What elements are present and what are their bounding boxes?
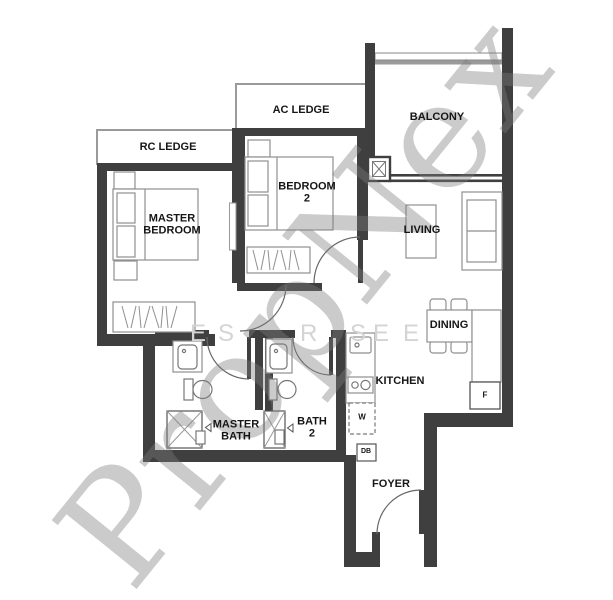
ledges: [97, 84, 366, 164]
ac-ledge-box: [236, 84, 366, 129]
mirror-panel: [230, 203, 237, 250]
floor-plan-drawing: [0, 0, 613, 600]
pillow-icon: [117, 226, 135, 257]
chair-icon: [451, 299, 467, 311]
bath2-fixtures: [264, 339, 296, 448]
floor-plan: PropNex E S R S E E RC LEDGE AC LEDGE BA…: [0, 0, 613, 600]
fridge-box: [470, 382, 500, 409]
washer-box: [349, 403, 375, 434]
counter-icon: [472, 310, 501, 382]
balcony-railing: [375, 53, 502, 65]
chair-icon: [430, 341, 446, 353]
entrance-door-arc: [377, 490, 421, 534]
nightstand-icon: [114, 172, 135, 189]
chair-icon: [451, 341, 467, 353]
toilet-icon: [269, 379, 277, 400]
bath2-door-arc: [293, 337, 331, 375]
wardrobe-icon: [247, 247, 310, 273]
coffee-table-icon: [406, 205, 436, 258]
bedroom2-furniture: [245, 140, 333, 273]
balcony-sliding-door: [388, 174, 502, 182]
pillow-icon: [248, 161, 268, 192]
master-bedroom-furniture: [113, 172, 198, 332]
master-bath-door-leaf: [247, 337, 251, 379]
bedroom2-door-arc: [314, 237, 360, 283]
living-furniture: [406, 192, 502, 270]
sink-icon: [350, 337, 371, 353]
kitchen-fittings: [346, 333, 376, 461]
rc-ledge-box: [97, 130, 240, 164]
chair-icon: [430, 299, 446, 311]
nightstand-icon: [248, 140, 270, 157]
dining-furniture: [427, 299, 501, 409]
nightstand-icon: [114, 261, 137, 280]
db-box: [357, 444, 376, 461]
toilet-icon: [184, 379, 193, 400]
master-bedroom-door-arc: [240, 285, 286, 331]
bedroom2-door-leaf: [358, 235, 363, 283]
master-bath-fixtures: [167, 341, 212, 448]
door-arrow-icon: [288, 424, 294, 432]
pillow-icon: [248, 195, 268, 226]
pillow-icon: [117, 193, 135, 223]
bath2-door-leaf: [329, 337, 333, 375]
door-arrow-icon: [206, 424, 212, 432]
entrance-door-leaf: [419, 490, 424, 534]
dining-table-icon: [427, 310, 472, 342]
column-x-icon: [368, 157, 390, 181]
